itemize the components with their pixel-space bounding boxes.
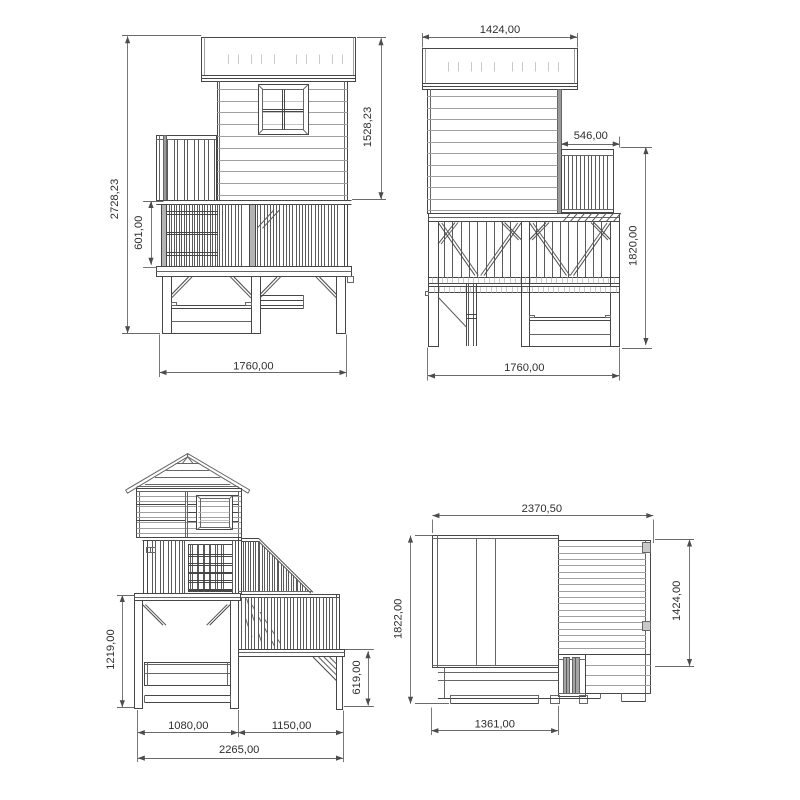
svg-text:2728,23: 2728,23 [109, 179, 121, 219]
svg-text:1219,00: 1219,00 [105, 629, 117, 669]
svg-text:601,00: 601,00 [133, 216, 145, 250]
svg-text:1424,00: 1424,00 [671, 581, 683, 621]
svg-text:1528,23: 1528,23 [362, 107, 374, 147]
svg-text:1150,00: 1150,00 [272, 720, 312, 732]
svg-text:1424,00: 1424,00 [480, 24, 520, 36]
svg-text:1760,00: 1760,00 [504, 362, 544, 374]
svg-text:1080,00: 1080,00 [168, 720, 208, 732]
svg-text:1820,00: 1820,00 [628, 225, 640, 265]
svg-text:1361,00: 1361,00 [475, 719, 515, 731]
svg-text:619,00: 619,00 [351, 660, 363, 694]
svg-text:2370,50: 2370,50 [522, 503, 562, 515]
svg-text:1760,00: 1760,00 [233, 361, 273, 373]
svg-text:2265,00: 2265,00 [219, 744, 259, 756]
svg-text:546,00: 546,00 [574, 130, 608, 142]
svg-text:1822,00: 1822,00 [393, 599, 405, 639]
